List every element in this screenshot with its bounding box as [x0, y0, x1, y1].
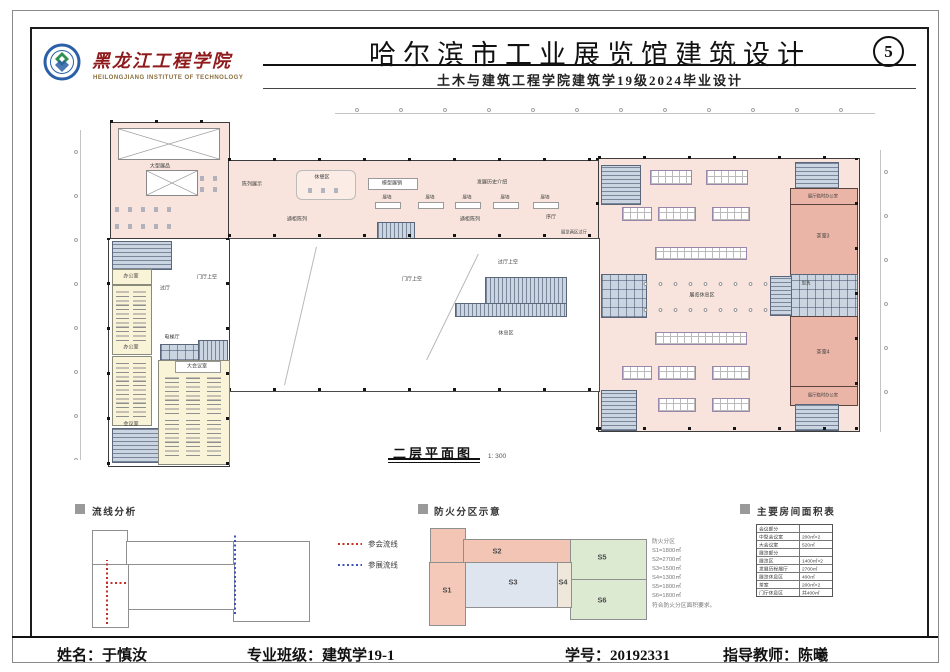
- fire-note: S4=1300㎡: [652, 574, 681, 580]
- column-row: [598, 156, 858, 159]
- mini2-block-s2: [430, 528, 466, 564]
- plan-title-rule: [388, 458, 480, 460]
- drawing-sheet: 黑龙江工程学院 HEILONGJIANG INSTITUTE OF TECHNO…: [0, 0, 950, 672]
- table-row: 发展历程展厅2700㎡: [757, 565, 832, 573]
- school-emblem-icon: [42, 42, 82, 82]
- circulation-title: 流线分析: [92, 505, 137, 519]
- room-label: 办公室: [123, 344, 138, 349]
- room-label: 过厅: [160, 285, 170, 290]
- exhibit-stand: [706, 170, 748, 185]
- top-grid-bubbles: [335, 107, 875, 113]
- exhibit-stand: [658, 398, 696, 412]
- exhibit-stand: [658, 366, 696, 380]
- exhibit-wall: [375, 202, 401, 209]
- room-label: 展厅临时办公室: [808, 393, 838, 397]
- wall-label: 展墙: [382, 195, 391, 200]
- mini1-leftwing: [92, 564, 129, 628]
- zone-label: S4: [558, 578, 567, 585]
- exhibit-stand: [655, 332, 747, 345]
- mini2-s6: [570, 579, 647, 620]
- seat-rows: [165, 376, 179, 414]
- fire-title: 防火分区示意: [434, 505, 501, 519]
- stair-core: [112, 428, 162, 463]
- left-grid-bubbles: [73, 130, 79, 460]
- fire-note: S3=1500㎡: [652, 565, 681, 571]
- table-row: 展览休息区400㎡: [757, 573, 832, 581]
- room-label: 休息区: [498, 330, 513, 335]
- zone-label: S3: [508, 578, 517, 585]
- washroom-core: [790, 274, 858, 318]
- right-dimension-line: [880, 150, 881, 432]
- table-row: 大会议室520㎡: [757, 541, 832, 549]
- lounge-seats: [308, 188, 342, 193]
- seat-rows: [207, 420, 221, 456]
- column-row: [855, 158, 858, 430]
- grand-stair: [485, 277, 567, 305]
- flow-line-conference: [106, 560, 108, 624]
- footer-advisor: 指导教师：陈曦: [723, 644, 828, 665]
- section-bullet: [75, 504, 85, 514]
- section-bullet: [418, 504, 428, 514]
- legend-line-conference: [338, 543, 362, 545]
- school-name-cn: 黑龙江工程学院: [92, 47, 232, 73]
- room-label: 陈列展示: [242, 181, 262, 186]
- stair-core: [112, 241, 172, 270]
- room-label: 展厅临时办公室: [808, 194, 838, 198]
- display-cases-row: [200, 176, 222, 181]
- fire-note: 防火分区: [652, 538, 675, 544]
- stair-core: [601, 390, 637, 431]
- room-label: 大会议室: [187, 363, 207, 368]
- room-label: 茶室4: [817, 349, 830, 354]
- seat-rows: [133, 361, 146, 417]
- room-tea-3: [790, 204, 858, 276]
- room-label: 序厅: [546, 214, 556, 219]
- room-label: 门厅上空: [197, 274, 217, 279]
- left-dimension-line: [80, 130, 81, 460]
- wall-label: 展墙: [425, 195, 434, 200]
- exhibit-stand: [622, 207, 652, 221]
- fire-note: S1=1800㎡: [652, 547, 681, 553]
- sheet-number: 5: [884, 42, 893, 62]
- footer-name: 姓名：于慎汝: [57, 644, 147, 665]
- exhibit-stand: [655, 247, 747, 260]
- room-label: 通柜陈列: [287, 216, 307, 221]
- table-row: 中型会议室200㎡×2: [757, 533, 832, 541]
- seat-rows: [116, 291, 129, 341]
- zone-label: S5: [597, 553, 606, 560]
- seat-rows: [133, 291, 146, 341]
- flow-line-conference: [106, 582, 128, 584]
- column-row: [226, 238, 229, 465]
- zone-label: S6: [597, 596, 606, 603]
- room-label: 展览两区过厅: [561, 230, 587, 234]
- exhibit-stand: [712, 398, 750, 412]
- section-bullet: [740, 504, 750, 514]
- rest-tables-row: [638, 306, 768, 314]
- zone-label: S1: [442, 586, 451, 593]
- table-row: 茶室200㎡×2: [757, 581, 832, 589]
- elevator-bank: [160, 344, 202, 361]
- legend-label: 参会流线: [368, 540, 398, 547]
- sheet-subtitle: 土木与建筑工程学院建筑学19级2024毕业设计: [437, 70, 743, 89]
- wall-label: 展墙: [500, 195, 509, 200]
- fire-note: S2=2700㎡: [652, 556, 681, 562]
- fire-note: 符合防火分区面积要求。: [652, 602, 715, 608]
- sheet-number-badge: 5: [873, 36, 904, 67]
- large-exhibit-area-2: [146, 170, 198, 196]
- mini1-block: [92, 530, 128, 566]
- stair-core: [770, 276, 792, 316]
- title-rule: [263, 64, 916, 66]
- mini2-s5: [570, 539, 647, 581]
- stair-core: [601, 165, 641, 205]
- fire-note: S5=1800㎡: [652, 583, 681, 589]
- table-row: ​会议部分: [757, 525, 832, 533]
- column-row: [598, 427, 858, 430]
- mini1-rightwing: [233, 541, 310, 622]
- school-logo: [42, 42, 82, 87]
- room-label: 通柜陈列: [460, 216, 480, 221]
- room-label: 模型展销: [382, 180, 402, 185]
- table-row: 门厅休息区共400㎡: [757, 589, 832, 596]
- flow-line-exhibit: [234, 534, 236, 614]
- room-label: 发展历史介绍: [477, 179, 507, 184]
- seat-rows: [165, 420, 179, 456]
- room-label: 电梯厅: [164, 334, 179, 339]
- footer-class: 专业班级：建筑学19-1: [247, 644, 395, 665]
- seat-rows: [186, 376, 200, 414]
- rest-tables-row: [638, 280, 768, 288]
- display-cases-row: [115, 207, 173, 212]
- exhibit-wall: [533, 202, 559, 209]
- seat-rows: [186, 420, 200, 456]
- area-table: ​会议部分 中型会议室200㎡×2 大会议室520㎡ 展览部分 展览区1400㎡…: [756, 524, 833, 597]
- stair-core: [795, 162, 839, 189]
- large-exhibit-area-1: [118, 128, 220, 160]
- legend-line-exhibit: [338, 564, 362, 566]
- mini2-band-s2: [463, 539, 572, 564]
- fire-note: S6=1800㎡: [652, 592, 681, 598]
- display-cases-row: [115, 224, 173, 229]
- wall-label: 展墙: [462, 195, 471, 200]
- subtitle-rule: [263, 88, 916, 89]
- grand-stair-lower: [455, 303, 567, 317]
- table-row: 展览区1400㎡×2: [757, 557, 832, 565]
- table-row: 展览部分: [757, 549, 832, 557]
- column-row: [228, 388, 598, 391]
- display-cases-row: [200, 187, 222, 192]
- column-row: [228, 234, 598, 237]
- exhibit-stand: [650, 170, 692, 185]
- exhibit-wall: [418, 202, 444, 209]
- plan-scale: 1: 300: [488, 453, 506, 460]
- exhibit-stand: [712, 207, 750, 221]
- exhibit-stand: [658, 207, 696, 221]
- column-row: [110, 120, 228, 123]
- right-grid-bubbles: [883, 150, 889, 432]
- legend-label: 参展流线: [368, 561, 398, 568]
- exhibit-wall: [493, 202, 519, 209]
- school-name-en: HEILONGJIANG INSTITUTE OF TECHNOLOGY: [93, 74, 243, 81]
- room-label: 办公室: [123, 273, 138, 278]
- column-row: [107, 238, 110, 465]
- room-label: 展览休息区: [689, 292, 714, 297]
- footer-student-id: 学号：20192331: [565, 644, 670, 665]
- top-dimension-line: [335, 113, 875, 114]
- room-label: 会议室: [123, 421, 138, 426]
- column-row: [228, 158, 598, 161]
- room-label: 门厅上空: [402, 276, 422, 281]
- area-table-title: 主要房间面积表: [757, 505, 835, 519]
- room-label: 大型展品: [150, 163, 170, 168]
- room-label: 盥洗: [802, 281, 811, 285]
- wall-label: 展墙: [540, 195, 549, 200]
- room-label: 过厅上空: [498, 259, 518, 264]
- mini1-band: [126, 541, 235, 566]
- exhibit-wall: [455, 202, 481, 209]
- mini1-atrium: [126, 564, 235, 610]
- room-label: 茶室3: [817, 233, 830, 238]
- exhibit-stand: [712, 366, 750, 380]
- plan-title-rule2: [388, 462, 480, 463]
- room-label: 休憩区: [314, 174, 329, 179]
- exhibit-stand: [622, 366, 652, 380]
- zone-label: S2: [492, 547, 501, 554]
- seat-rows: [116, 361, 129, 417]
- footer-rule: [12, 636, 938, 638]
- seat-rows: [207, 376, 221, 414]
